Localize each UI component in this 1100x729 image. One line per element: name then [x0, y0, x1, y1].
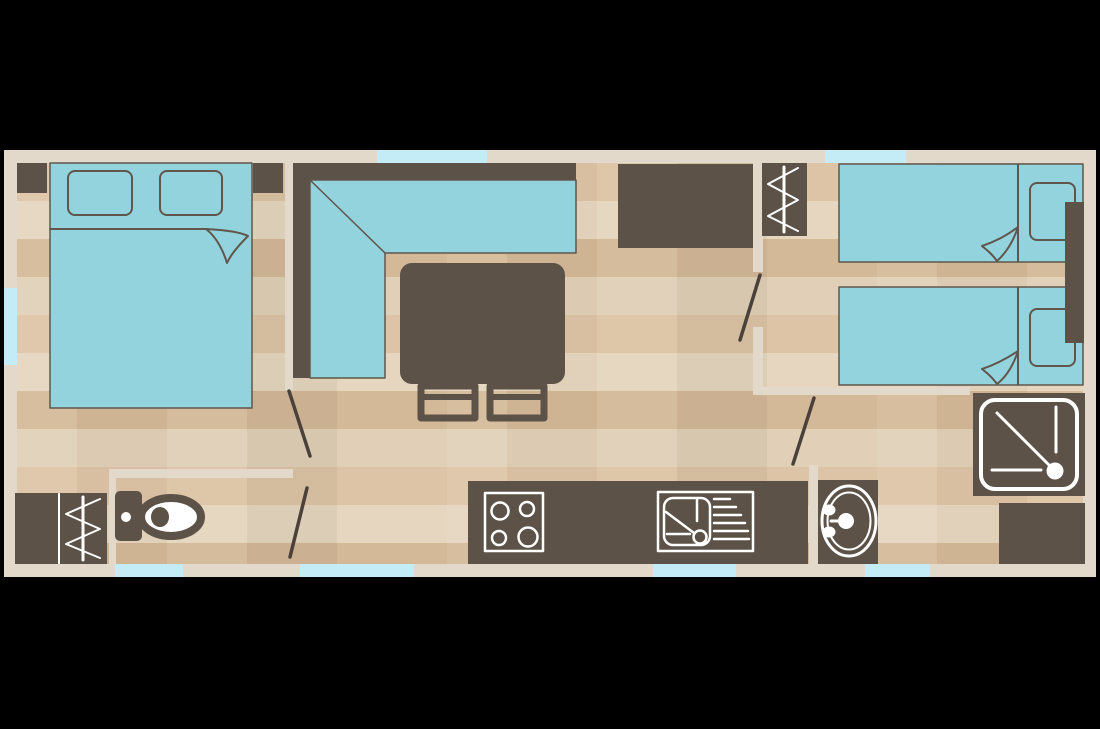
- door-swing-master: [289, 391, 310, 456]
- chair-left: [421, 386, 475, 418]
- double-bed-pillow-right: [160, 171, 222, 215]
- sofa-back-top: [293, 163, 576, 180]
- double-bed-pillow-left: [68, 171, 132, 215]
- window-bottom-kitchen: [653, 564, 736, 577]
- window-left-master: [4, 288, 17, 365]
- sofa-back-left: [293, 163, 310, 378]
- shower-drain: [1047, 463, 1064, 480]
- door-swing-toilet: [290, 488, 307, 557]
- twin-nightstand: [1065, 202, 1084, 343]
- window-top-living: [377, 150, 487, 163]
- wall-toilet-top: [109, 469, 293, 478]
- wall-hall-lower: [753, 327, 763, 391]
- cabinet-shower-room: [999, 503, 1085, 564]
- wall-master-partition: [285, 163, 293, 390]
- chair-right: [490, 386, 544, 418]
- dining-table: [400, 263, 565, 384]
- toilet-bowl-icon: [141, 498, 201, 536]
- window-top-twin: [825, 150, 906, 163]
- nightstand-right: [253, 163, 283, 193]
- kitchen-cabinet: [618, 164, 753, 248]
- cabinet-bath: [15, 493, 58, 564]
- floor-plan-canvas: [0, 0, 1100, 729]
- floor-plan: [0, 0, 1100, 729]
- window-bottom-hall: [300, 564, 414, 577]
- toilet-outlet: [151, 507, 169, 527]
- door-swing-shower: [793, 398, 814, 464]
- nightstand-left: [17, 163, 47, 193]
- wall-hall-upper: [753, 163, 763, 272]
- outer-wall-top: [4, 150, 1096, 163]
- washbasin-drain: [838, 513, 854, 529]
- wall-basin-left: [809, 465, 818, 564]
- washbasin-tap-handle-2: [823, 527, 836, 538]
- wall-twin-bottom: [753, 387, 970, 395]
- window-bottom-master: [115, 564, 183, 577]
- washbasin-tap-handle-1: [823, 505, 836, 516]
- toilet-button: [121, 512, 131, 522]
- window-bottom-shower: [865, 564, 930, 577]
- wall-toilet-left: [109, 478, 116, 564]
